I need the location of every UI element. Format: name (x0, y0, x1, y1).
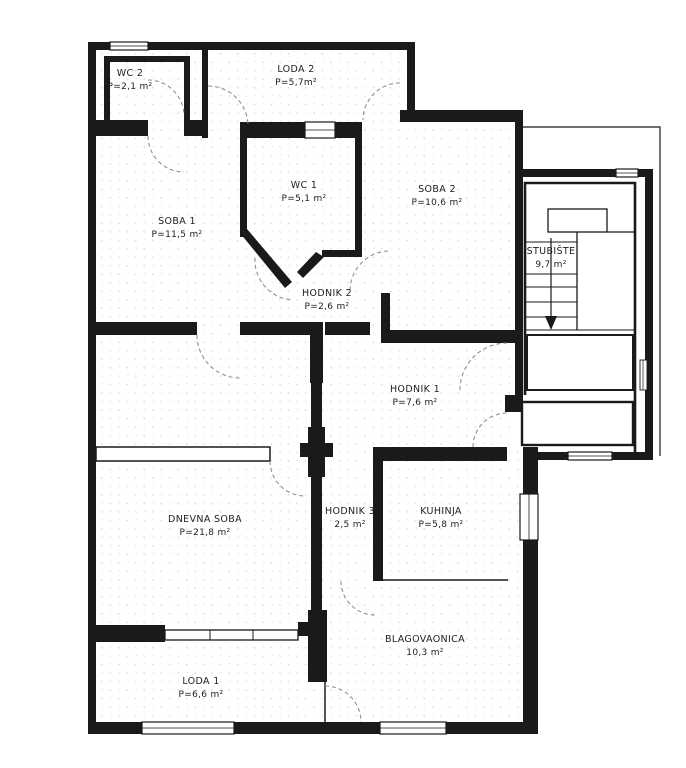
soba2-bottom-wall (390, 330, 515, 343)
outer-wall-left (88, 42, 96, 734)
room-label-loda2: LODA 2 P=5,7m² (275, 64, 317, 89)
loda1-glazing (165, 630, 298, 640)
wc1-right-wall (355, 138, 362, 252)
window-building-edge (640, 360, 647, 390)
room-label-soba2: SOBA 2 P=10,6 m² (412, 184, 463, 209)
window-kuhinja-right (520, 494, 538, 540)
spine-wall-mid (311, 383, 322, 427)
shaft-wall (202, 50, 208, 138)
room-area: 9,7 m² (527, 259, 576, 271)
dnevna-top-partition (96, 447, 270, 461)
room-name: HODNIK 1 (390, 384, 440, 395)
wc1-bottom-wall (322, 250, 362, 257)
spine-pier-bottom-notch (298, 622, 308, 636)
room-area: P=7,6 m² (390, 397, 440, 409)
room-label-wc1: WC 1 P=5,1 m² (282, 180, 327, 205)
wc2-bottom-wall (96, 120, 148, 136)
outer-wall-right-lower (523, 447, 538, 734)
room-name: WC 2 (117, 68, 144, 79)
room-name: WC 1 (291, 180, 318, 191)
room-area: P=21,8 m² (168, 527, 242, 539)
room-name: BLAGOVAONICA (385, 634, 465, 645)
kuhinja-top-wall (373, 447, 507, 461)
room-name: HODNIK 3 (325, 506, 375, 517)
outer-wall-top-right-step (407, 42, 415, 118)
window-top-left (110, 42, 148, 50)
room-label-kuhinja: KUHINJA P=5,8 m² (419, 506, 464, 531)
room-label-stubiste: STUBIŠTE 9,7 m² (527, 246, 576, 271)
room-area: 2,5 m² (325, 519, 375, 531)
room-name: LODA 2 (277, 64, 314, 75)
room-area: P=2,1 m² (108, 81, 153, 93)
loda2-bottom-wall (240, 122, 362, 138)
window-blagovaonica-bottom (380, 722, 446, 734)
room-label-hodnik1: HODNIK 1 P=7,6 m² (390, 384, 440, 409)
outer-wall-right-upper (515, 110, 523, 177)
dnevna-right-wall (311, 477, 322, 611)
spine-wall-upper (310, 322, 323, 383)
room-label-dnevna-soba: DNEVNA SOBA P=21,8 m² (168, 514, 242, 539)
soba1-bottom-wall (96, 322, 197, 335)
window-stair-bottom (568, 452, 612, 460)
entrance-door-pier (505, 395, 523, 412)
room-area: P=5,1 m² (282, 193, 327, 205)
soba1-bottom-wall-right (240, 322, 310, 335)
room-area: P=10,6 m² (412, 197, 463, 209)
room-label-soba1: SOBA 1 P=11,5 m² (152, 216, 203, 241)
room-area: 10,3 m² (385, 647, 465, 659)
wc1-left-wall (240, 138, 247, 237)
room-area: P=11,5 m² (152, 229, 203, 241)
room-name: LODA 1 (182, 676, 219, 687)
room-name: STUBIŠTE (527, 246, 576, 257)
spine-pier-bottom (308, 610, 327, 682)
room-area: P=2,6 m² (302, 301, 352, 313)
room-name: HODNIK 2 (302, 288, 352, 299)
room-area: P=5,7m² (275, 77, 317, 89)
spine-pier-top-cross (300, 443, 333, 457)
room-label-loda1: LODA 1 P=6,6 m² (179, 676, 224, 701)
room-name: SOBA 2 (418, 184, 456, 195)
room-label-hodnik2: HODNIK 2 P=2,6 m² (302, 288, 352, 313)
window-loda2-wc1 (305, 122, 335, 138)
room-label-wc2: WC 2 P=2,1 m² (108, 68, 153, 93)
hodnik2-bottom-wall (325, 322, 370, 335)
room-label-hodnik3: HODNIK 3 2,5 m² (325, 506, 375, 531)
stairwell-right-wall (645, 169, 653, 460)
loda1-top-wall (96, 625, 165, 642)
soba2-top-wall (400, 110, 523, 122)
room-name: DNEVNA SOBA (168, 514, 242, 525)
room-area: P=6,6 m² (179, 689, 224, 701)
soba2-left-stub (381, 293, 390, 343)
wc2-top-wall (104, 56, 190, 62)
room-label-blagovaonica: BLAGOVAONICA 10,3 m² (385, 634, 465, 659)
floor-plan: WC 2 P=2,1 m² LODA 2 P=5,7m² WC 1 P=5,1 … (0, 0, 686, 768)
room-name: KUHINJA (420, 506, 462, 517)
apartment-right-wall (515, 177, 523, 395)
floor-plan-svg (0, 0, 686, 768)
window-stair-top (616, 169, 638, 177)
room-name: SOBA 1 (158, 216, 196, 227)
room-area: P=5,8 m² (419, 519, 464, 531)
glazing-frame (165, 630, 298, 640)
window-loda1-bottom (142, 722, 234, 734)
